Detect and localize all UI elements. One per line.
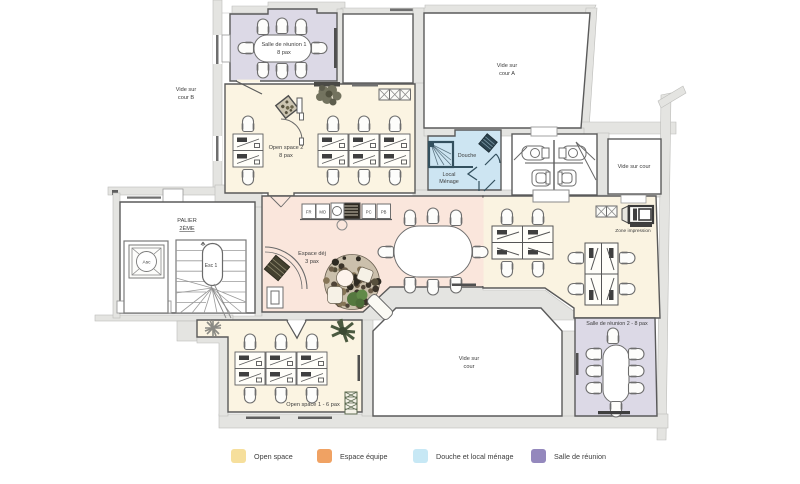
svg-text:Vide sur: Vide sur: [176, 87, 197, 93]
svg-text:Open space: Open space: [254, 452, 293, 461]
svg-text:Douche et local ménage: Douche et local ménage: [436, 452, 514, 461]
svg-text:Salle de réunion 2 - 8 pax: Salle de réunion 2 - 8 pax: [586, 321, 648, 327]
svg-text:Salle de réunion: Salle de réunion: [554, 452, 606, 461]
svg-text:MO: MO: [319, 210, 326, 215]
svg-text:Espace équipe: Espace équipe: [340, 452, 388, 461]
svg-text:cour A: cour A: [499, 71, 515, 77]
svg-text:Salle de réunion 1: Salle de réunion 1: [261, 42, 306, 48]
svg-text:Zone impression: Zone impression: [615, 228, 651, 234]
svg-text:cour B: cour B: [178, 95, 194, 101]
svg-text:Esc 1: Esc 1: [205, 263, 218, 269]
svg-text:Local: Local: [443, 172, 456, 178]
svg-text:Vide sur: Vide sur: [459, 356, 480, 362]
svg-text:Douche: Douche: [458, 153, 477, 159]
svg-text:3 pax: 3 pax: [305, 259, 319, 265]
svg-text:Asc: Asc: [143, 260, 152, 266]
svg-text:FR: FR: [306, 210, 312, 215]
svg-text:Vide sur cour: Vide sur cour: [618, 164, 651, 170]
svg-text:Vide sur: Vide sur: [497, 63, 518, 69]
svg-text:PC: PC: [366, 210, 372, 215]
svg-text:Open space 2: Open space 2: [269, 145, 304, 151]
svg-text:2ÈME: 2ÈME: [179, 225, 195, 232]
svg-text:8 pax: 8 pax: [277, 50, 291, 56]
svg-text:8 pax: 8 pax: [279, 153, 293, 159]
svg-text:Espace déj: Espace déj: [298, 251, 326, 257]
svg-text:Open space 1 - 6 pax: Open space 1 - 6 pax: [286, 402, 340, 408]
svg-text:PB: PB: [381, 210, 387, 215]
svg-text:PALIER: PALIER: [177, 218, 196, 224]
svg-text:Ménage: Ménage: [439, 179, 458, 185]
svg-text:cour: cour: [464, 364, 475, 370]
